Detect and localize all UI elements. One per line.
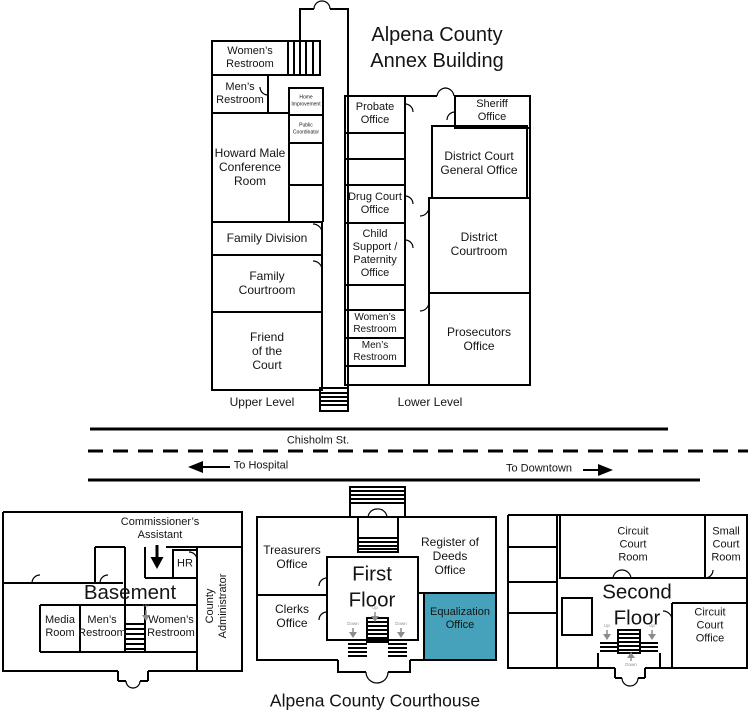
label-hr: HR: [177, 558, 193, 571]
label-county-administrator: County Administrator: [204, 574, 230, 639]
label-equalization-office: Equalization Office: [430, 606, 490, 632]
label-register-of-deeds: Register of Deeds Office: [421, 535, 479, 577]
label-clerks-office: Clerks Office: [275, 602, 309, 630]
floor-plan-page: Alpena County Annex Building Women’s Res…: [0, 0, 750, 726]
label-ff-stair-down-left: Down: [347, 622, 359, 627]
label-district-court-general: District Court General Office: [440, 149, 517, 177]
label-howard-male-conference: Howard Male Conference Room: [215, 146, 286, 188]
label-lower-level: Lower Level: [398, 395, 463, 409]
to-hospital-arrow: [188, 461, 230, 473]
label-home-improvement: Home Improvement: [291, 95, 320, 108]
label-basement-mens-restroom: Men’s Restroom: [78, 614, 126, 640]
label-probate-office: Probate Office: [356, 101, 395, 127]
label-second-floor: Second Floor: [602, 579, 672, 630]
label-annex-mens-restroom: Men’s Restroom: [216, 81, 264, 107]
label-drug-court-office: Drug Court Office: [348, 191, 402, 217]
label-friend-of-the-court: Friend of the Court: [250, 330, 284, 372]
label-public-coordinator: Public Coordinator: [293, 123, 319, 136]
label-lower-mens-restroom: Men’s Restroom: [353, 340, 396, 364]
label-prosecutors-office: Prosecutors Office: [447, 325, 511, 353]
commissioners-assistant-arrow: [151, 545, 164, 569]
chisholm-street-lines: [88, 429, 748, 480]
label-circuit-court-room: Circuit Court Room: [617, 526, 648, 565]
label-treasurers-office: Treasurers Office: [263, 543, 321, 571]
label-commissioners-assistant: Commissioner’s Assistant: [121, 516, 199, 542]
label-chisholm-street: Chisholm St.: [287, 435, 349, 448]
label-to-downtown: To Downtown: [506, 463, 572, 476]
label-sheriff-office: Sheriff Office: [476, 98, 508, 124]
label-annex-womens-restroom: Women’s Restroom: [226, 45, 274, 71]
label-lower-womens-restroom: Women’s Restroom: [353, 312, 396, 336]
label-ff-stair-up: Up: [372, 606, 378, 611]
label-ff-stair-down-right: Down: [395, 622, 407, 627]
courthouse-title: Alpena County Courthouse: [270, 691, 480, 712]
label-basement-womens-restroom: Women’s Restroom: [147, 614, 195, 640]
label-circuit-court-office: Circuit Court Office: [694, 607, 725, 646]
annex-title: Alpena County Annex Building: [337, 22, 537, 74]
label-sf-stair-up-right: Up: [649, 624, 655, 629]
label-small-court-room: Small Court Room: [711, 526, 740, 565]
label-family-courtroom: Family Courtroom: [239, 269, 296, 297]
label-media-room: Media Room: [45, 614, 75, 640]
label-child-support: Child Support / Paternity Office: [353, 228, 398, 280]
label-sf-stair-down: Down: [625, 663, 637, 668]
label-to-hospital: To Hospital: [234, 460, 288, 473]
label-district-courtroom: District Courtroom: [451, 230, 508, 258]
label-upper-level: Upper Level: [230, 395, 295, 409]
label-basement: Basement: [84, 580, 176, 606]
label-sf-stair-up-left: Up: [604, 624, 610, 629]
label-basement-stair-up: Up: [143, 604, 149, 609]
to-downtown-arrow: [583, 464, 613, 476]
label-family-division: Family Division: [227, 231, 308, 245]
